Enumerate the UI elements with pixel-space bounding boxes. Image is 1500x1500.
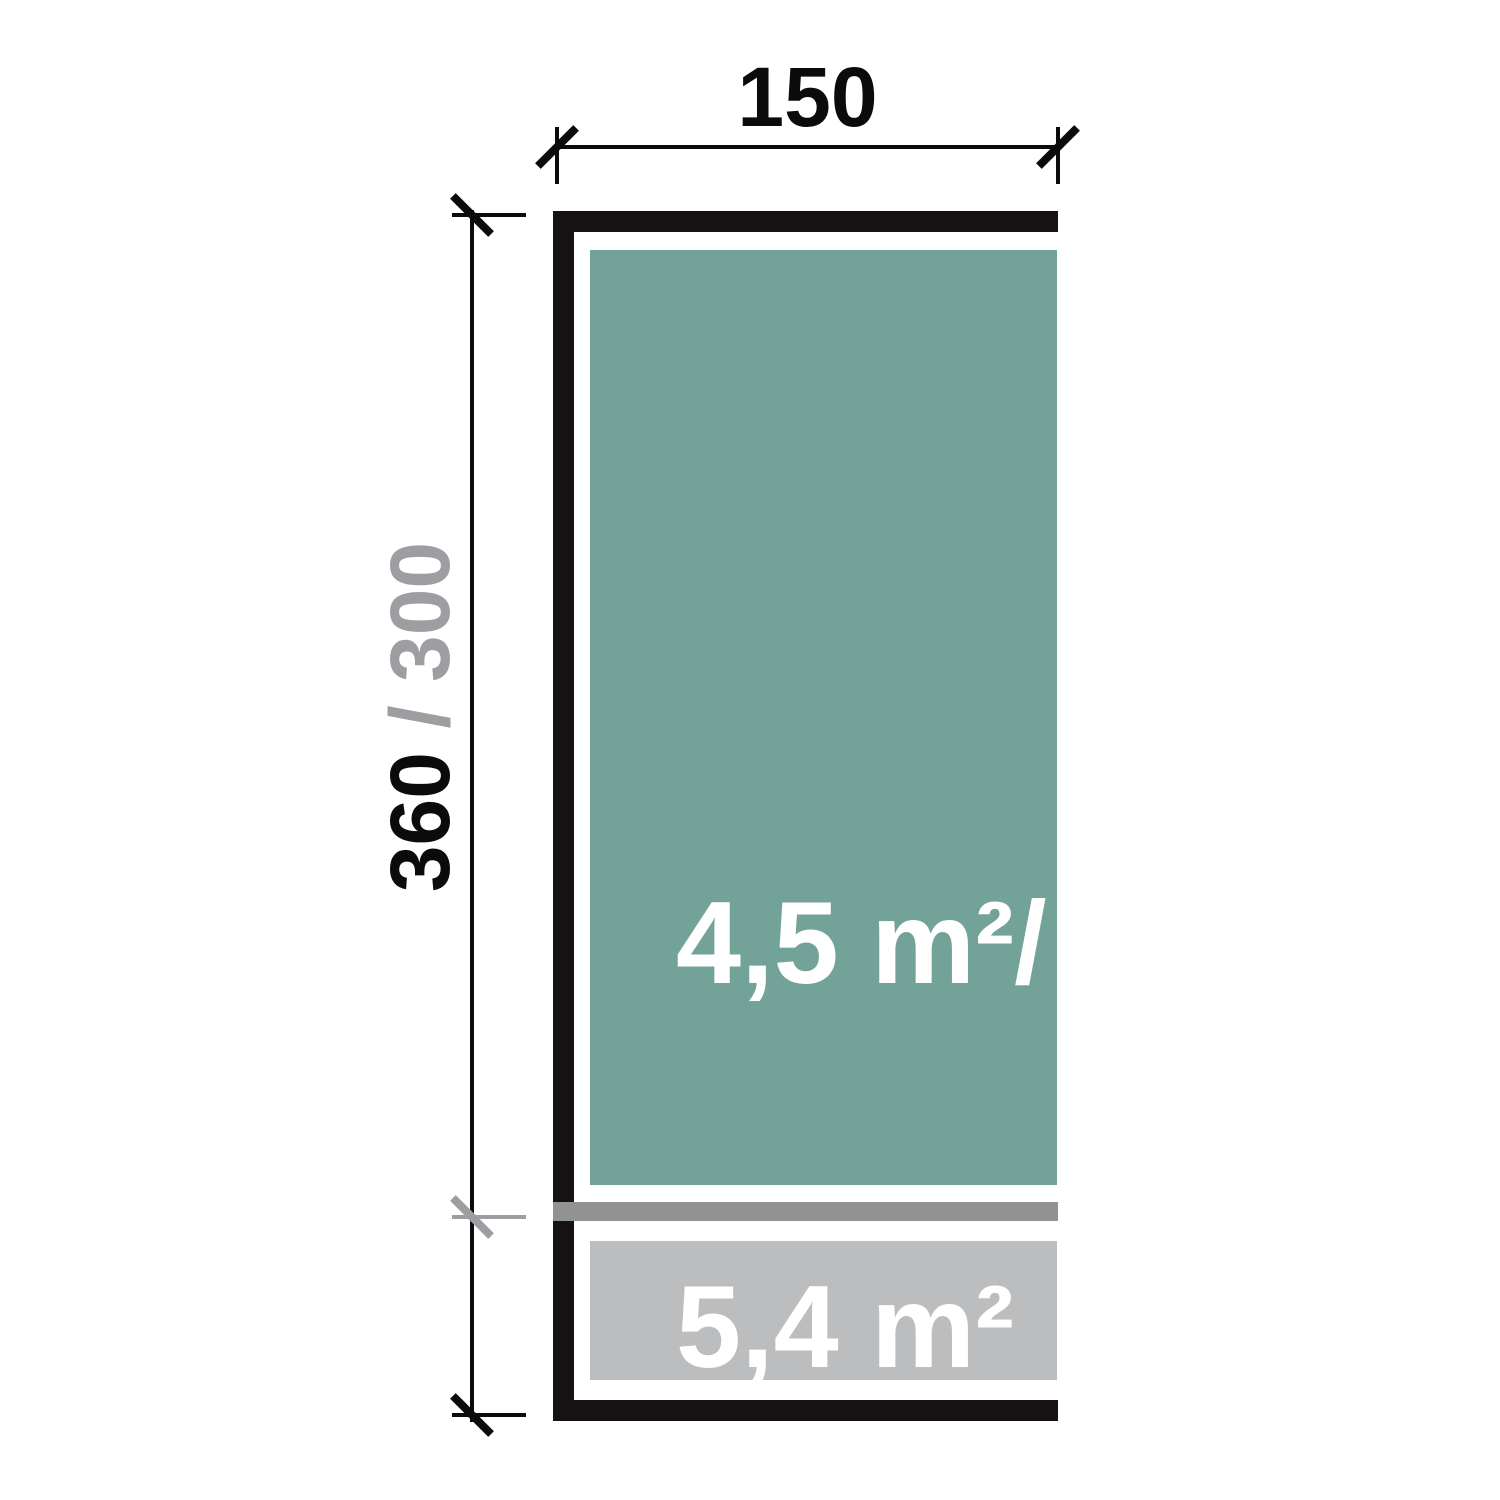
height-separator: / — [378, 682, 462, 752]
width-extension-line-right — [1056, 127, 1060, 184]
area-label-line1: 4,5 m²/ — [676, 879, 1047, 1007]
floor-plan-diagram: 150 360 / 300 4,5 m²/ 5,4 m² — [0, 0, 1500, 1500]
height-secondary-value: 300 — [378, 542, 462, 682]
width-dimension-line — [557, 145, 1058, 149]
height-primary-value: 360 — [378, 752, 462, 892]
height-extension-line-middle — [452, 1215, 526, 1219]
area-label-line2: 5,4 m² — [676, 1263, 1047, 1391]
height-dimension-line — [470, 210, 474, 1422]
width-dimension-label: 150 — [557, 55, 1058, 139]
height-extension-line-top — [452, 213, 526, 217]
width-extension-line-left — [555, 127, 559, 184]
height-extension-line-bottom — [452, 1413, 526, 1417]
height-dimension-label: 360 / 300 — [378, 417, 462, 1017]
area-label: 4,5 m²/ 5,4 m² — [676, 623, 1047, 1500]
